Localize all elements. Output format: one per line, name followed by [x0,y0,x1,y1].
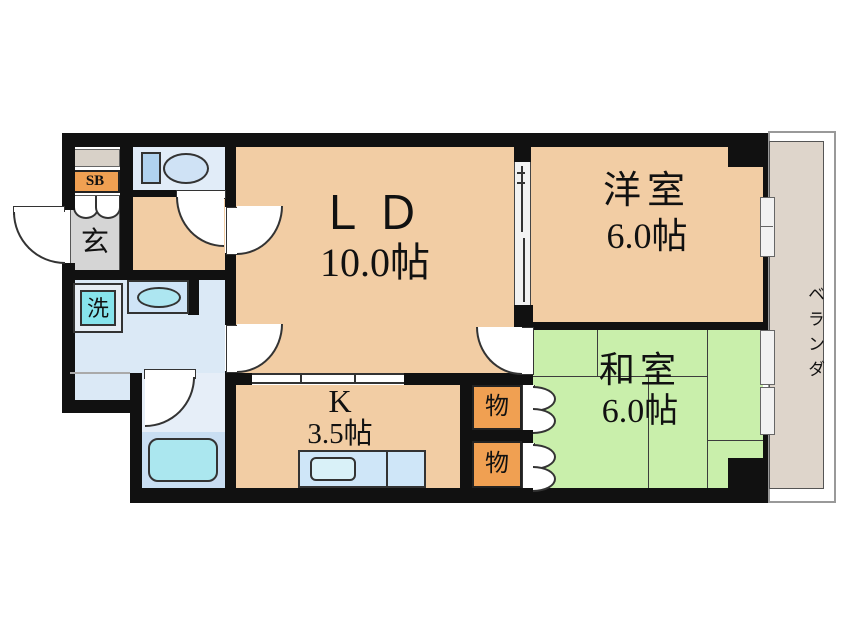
wall-left-upper [62,133,75,210]
japanese-window-upper [760,330,775,385]
kitchen-size: 3.5帖 [245,419,435,449]
entry-closet [70,149,120,167]
kitchen-counter [298,450,426,488]
tatami-line [707,440,763,441]
sliding-door-mark [517,182,525,184]
shoe-box-label: SB [86,173,104,189]
entry-door-arc [13,212,65,264]
wall-top [62,133,772,147]
shoe-box: SB [70,170,120,193]
pass-through-mark [300,374,302,383]
sliding-door-panel [523,238,525,302]
kitchen-label-block: K 3.5帖 [245,385,435,449]
pillar-bottom-right [728,458,772,498]
wall-hall-ld-upper [225,133,236,207]
storage-lower: 物 [472,441,522,488]
ld-size: 10.0帖 [236,242,514,284]
ld-label-block: ＬＤ 10.0帖 [236,190,514,284]
wall-entry-column [120,133,133,277]
floor-plan: SB 玄 ベランダ [0,0,846,634]
laundry-label: 洗 [75,297,121,320]
wall-western-japanese [533,322,772,330]
toilet-icon [141,152,161,184]
storage-upper-label: 物 [485,394,509,420]
western-label-block: 洋室 6.0帖 [531,172,763,256]
sink-icon [127,280,189,314]
ld-name: ＬＤ [236,190,514,238]
western-size: 6.0帖 [531,218,763,256]
wall-hall-ld-mid [225,253,236,325]
genkan-label: 玄 [71,228,119,257]
veranda-label: ベランダ [770,260,823,410]
wall-bath-left [130,373,142,503]
japanese-name: 和室 [533,352,747,390]
wall-ld-kitchen-right [404,373,462,385]
pillar-top-right [728,133,772,167]
bathtub-icon [148,438,218,482]
kitchen-name: K [245,385,435,419]
sink-basin [137,287,181,308]
veranda-floor: ベランダ [769,141,824,489]
pass-through-mark [354,374,356,383]
storage-upper: 物 [472,385,522,430]
wall-bath-kitchen [225,371,236,491]
sliding-door-panel [521,166,523,232]
ld-japanese-door-leaf [520,327,534,375]
counter-divider [386,452,388,486]
kitchen-sink-icon [310,457,356,481]
japanese-window-lower [760,387,775,435]
wall-washroom-stub [188,277,199,315]
toilet-bowl-icon [163,153,209,184]
storage-lower-label: 物 [485,451,509,477]
japanese-size: 6.0帖 [533,394,747,430]
washing-machine-icon: 洗 [73,283,123,333]
japanese-label-block: 和室 6.0帖 [533,352,747,429]
sliding-door-mark [517,172,525,174]
washroom-floor-line [70,372,130,374]
wall-ld-kitchen-left [236,373,252,385]
wall-partition-top [514,147,531,162]
shoebox-folding-door-icon [95,196,121,219]
western-name: 洋室 [531,172,763,212]
wall-genkan-washroom [62,270,236,280]
washroom-floor-extension [70,373,130,400]
